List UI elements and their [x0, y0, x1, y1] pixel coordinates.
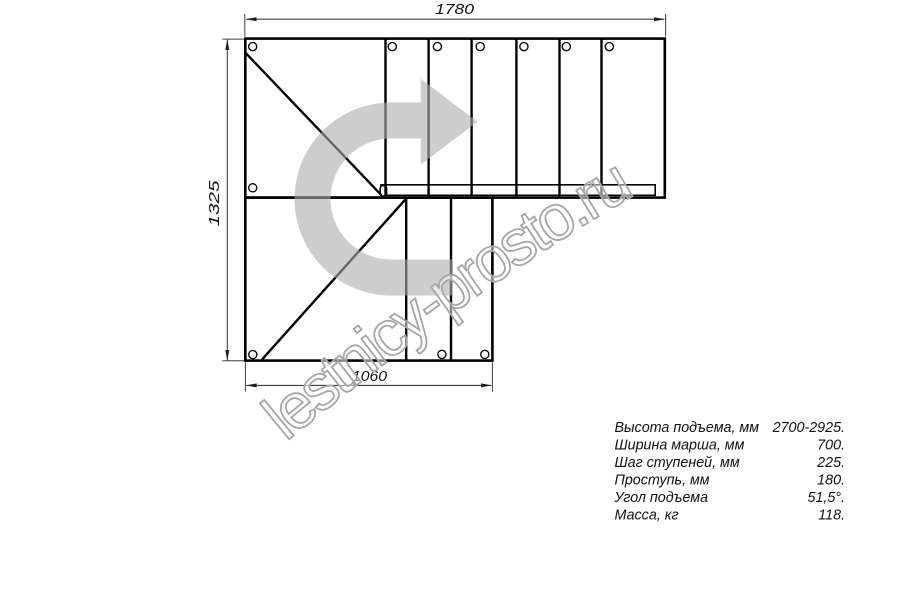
- svg-text:2700-2925.: 2700-2925.: [772, 420, 845, 436]
- svg-text:Ширина марша, мм: Ширина марша, мм: [615, 438, 745, 454]
- svg-text:180.: 180.: [817, 473, 845, 489]
- svg-text:51,5°.: 51,5°.: [807, 490, 845, 506]
- svg-text:Высота подъема, мм: Высота подъема, мм: [615, 420, 760, 436]
- svg-text:Шаг ступеней, мм: Шаг ступеней, мм: [615, 455, 740, 471]
- svg-text:Угол подъема: Угол подъема: [614, 490, 709, 506]
- svg-text:Масса, кг: Масса, кг: [615, 508, 679, 524]
- svg-text:700.: 700.: [817, 438, 845, 454]
- svg-text:118.: 118.: [818, 508, 845, 524]
- svg-text:Проступь, мм: Проступь, мм: [615, 473, 710, 489]
- svg-text:225.: 225.: [816, 455, 845, 471]
- svg-text:1325: 1325: [207, 180, 223, 226]
- svg-text:1780: 1780: [435, 2, 474, 18]
